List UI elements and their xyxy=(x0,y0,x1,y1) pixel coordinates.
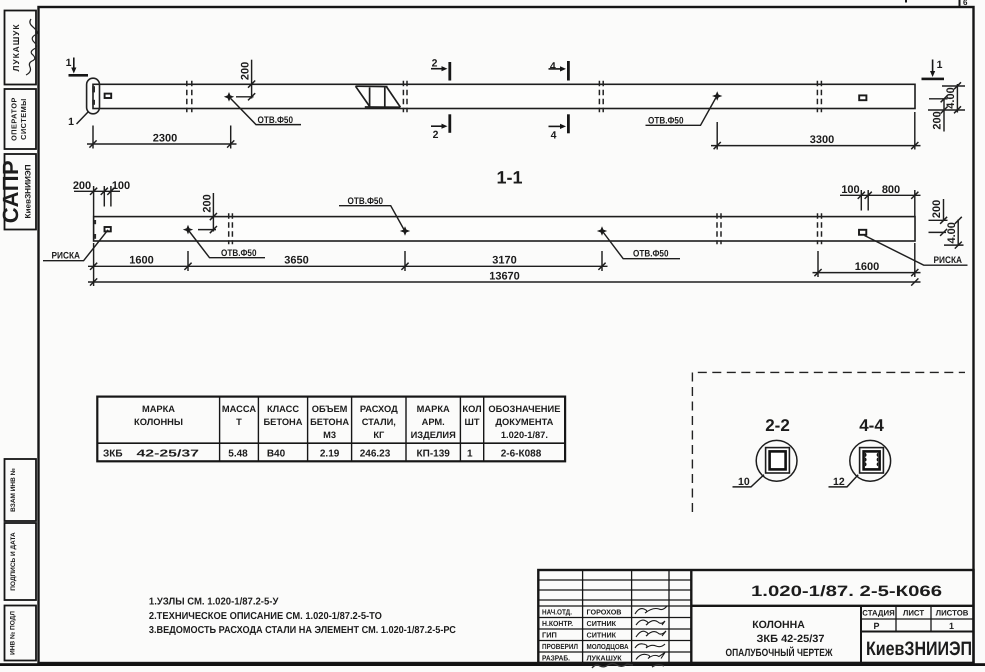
svg-text:В40: В40 xyxy=(267,449,286,460)
svg-text:САПР: САПР xyxy=(0,160,23,223)
svg-text:ОПАЛУБОЧНЫЙ ЧЕРТЕЖ: ОПАЛУБОЧНЫЙ ЧЕРТЕЖ xyxy=(726,646,833,659)
svg-text:КОЛОННЫ: КОЛОННЫ xyxy=(134,417,183,427)
svg-text:ГИП: ГИП xyxy=(542,631,557,640)
svg-text:2.ТЕХНИЧЕСКОЕ ОПИСАНИЕ СМ. 1.0: 2.ТЕХНИЧЕСКОЕ ОПИСАНИЕ СМ. 1.020-1/87.2-… xyxy=(149,611,382,622)
svg-text:12: 12 xyxy=(833,476,845,488)
svg-text:3.ВЕДОМОСТЬ РАСХОДА СТАЛИ НА Э: 3.ВЕДОМОСТЬ РАСХОДА СТАЛИ НА ЭЛЕМЕНТ СМ.… xyxy=(149,625,456,636)
svg-text:ШТ: ШТ xyxy=(464,417,479,427)
svg-text:2: 2 xyxy=(432,58,438,70)
svg-text:РАСХОД: РАСХОД xyxy=(360,404,398,414)
svg-text:АРМ.: АРМ. xyxy=(422,417,445,427)
svg-text:200: 200 xyxy=(240,62,252,80)
svg-text:5.48: 5.48 xyxy=(228,449,248,460)
svg-text:БЕТОНА: БЕТОНА xyxy=(264,417,303,427)
svg-text:НАЧ.ОТД.: НАЧ.ОТД. xyxy=(542,608,572,617)
svg-text:200: 200 xyxy=(201,194,213,212)
svg-text:ЗКБ 42-25/37: ЗКБ 42-25/37 xyxy=(757,633,825,645)
svg-text:РИСКА: РИСКА xyxy=(52,250,81,261)
svg-text:13670: 13670 xyxy=(489,270,520,282)
svg-text:1: 1 xyxy=(66,57,72,69)
svg-text:ЗКБ: ЗКБ xyxy=(103,449,123,460)
svg-text:ГОРОХОВ: ГОРОХОВ xyxy=(587,608,622,617)
svg-text:МОЛОДЦОВА: МОЛОДЦОВА xyxy=(587,642,629,651)
svg-text:ИЗДЕЛИЯ: ИЗДЕЛИЯ xyxy=(411,430,457,440)
svg-text:1.020-1/87.: 1.020-1/87. xyxy=(501,430,548,440)
svg-text:200: 200 xyxy=(931,111,943,129)
svg-text:2: 2 xyxy=(433,129,439,141)
svg-text:КЛАСС: КЛАСС xyxy=(267,404,299,414)
svg-text:1: 1 xyxy=(949,621,954,631)
svg-text:4-4: 4-4 xyxy=(859,416,884,435)
svg-text:КОЛОННА: КОЛОННА xyxy=(752,619,805,631)
svg-text:ЛУКАШУК: ЛУКАШУК xyxy=(587,653,623,662)
svg-text:РАЗРАБ.: РАЗРАБ. xyxy=(542,653,570,662)
svg-text:1.УЗЛЫ СМ. 1.020-1/87.2-5-У: 1.УЗЛЫ СМ. 1.020-1/87.2-5-У xyxy=(149,597,279,608)
svg-text:СТАЛИ,: СТАЛИ, xyxy=(362,417,396,427)
svg-text:ОТВ.Ф50: ОТВ.Ф50 xyxy=(648,116,684,127)
svg-text:ВЗАМ ИНВ №: ВЗАМ ИНВ № xyxy=(10,468,17,512)
svg-text:КГ: КГ xyxy=(373,430,385,440)
svg-text:1: 1 xyxy=(467,449,473,460)
svg-text:КОЛ: КОЛ xyxy=(462,404,481,414)
svg-text:2300: 2300 xyxy=(153,132,177,144)
svg-text:ЛИСТ: ЛИСТ xyxy=(903,609,925,618)
svg-text:1600: 1600 xyxy=(129,255,153,267)
svg-text:МАССА: МАССА xyxy=(222,404,256,414)
svg-text:ЛИСТОВ: ЛИСТОВ xyxy=(936,609,969,618)
svg-text:200: 200 xyxy=(73,180,91,192)
svg-text:РИСКА: РИСКА xyxy=(934,255,963,266)
svg-text:2-2: 2-2 xyxy=(765,416,790,435)
svg-text:БЕТОНА: БЕТОНА xyxy=(310,417,349,427)
svg-text:1600: 1600 xyxy=(855,261,879,273)
svg-text:КП-139: КП-139 xyxy=(417,449,451,460)
svg-text:ПРОВЕРИЛ: ПРОВЕРИЛ xyxy=(542,642,578,651)
svg-text:ОТВ.Ф50: ОТВ.Ф50 xyxy=(258,115,294,126)
svg-text:4.00: 4.00 xyxy=(945,87,957,108)
svg-text:4.00: 4.00 xyxy=(946,222,958,243)
svg-text:ИНВ № ПОДЛ: ИНВ № ПОДЛ xyxy=(10,611,17,655)
svg-text:Н.КОНТР.: Н.КОНТР. xyxy=(542,619,573,628)
svg-text:100: 100 xyxy=(112,180,130,192)
svg-text:ОТВ.Ф50: ОТВ.Ф50 xyxy=(633,248,669,259)
svg-text:КиевЗНИИЭП: КиевЗНИИЭП xyxy=(866,638,972,660)
svg-text:ОПЕРАТОР: ОПЕРАТОР xyxy=(10,97,19,141)
svg-text:1: 1 xyxy=(68,116,74,128)
svg-text:100: 100 xyxy=(841,184,859,196)
svg-text:СИТНИК: СИТНИК xyxy=(587,619,617,628)
svg-text:1: 1 xyxy=(937,59,943,71)
svg-text:Р: Р xyxy=(873,621,879,631)
svg-text:6: 6 xyxy=(963,0,968,7)
svg-text:246.23: 246.23 xyxy=(360,449,391,460)
svg-text:42-25/37: 42-25/37 xyxy=(137,449,200,460)
svg-text:ПОДПИСЬ И ДАТА: ПОДПИСЬ И ДАТА xyxy=(10,532,17,591)
svg-text:СИСТЕМЫ: СИСТЕМЫ xyxy=(19,98,28,140)
svg-text:1.020-1/87. 2-5-К066: 1.020-1/87. 2-5-К066 xyxy=(751,583,942,600)
svg-text:ОБЪЕМ: ОБЪЕМ xyxy=(312,404,348,414)
svg-text:М3: М3 xyxy=(323,430,336,440)
svg-text:3300: 3300 xyxy=(810,134,834,146)
svg-text:ОТВ.Ф50: ОТВ.Ф50 xyxy=(348,196,384,207)
svg-text:ДОКУМЕНТА: ДОКУМЕНТА xyxy=(495,417,553,427)
svg-text:Т: Т xyxy=(236,417,242,427)
svg-text:200: 200 xyxy=(931,200,943,218)
svg-text:10: 10 xyxy=(738,476,750,488)
svg-text:2.19: 2.19 xyxy=(320,449,340,460)
svg-text:800: 800 xyxy=(882,184,900,196)
svg-text:4: 4 xyxy=(551,130,557,142)
svg-text:1-1: 1-1 xyxy=(496,168,522,188)
svg-text:МАРКА: МАРКА xyxy=(142,404,175,414)
svg-text:3650: 3650 xyxy=(284,255,308,267)
svg-text:ОБОЗНАЧЕНИЕ: ОБОЗНАЧЕНИЕ xyxy=(488,404,560,414)
svg-text:МАРКА: МАРКА xyxy=(417,404,450,414)
svg-text:СИТНИК: СИТНИК xyxy=(587,631,617,640)
svg-text:ОТВ.Ф50: ОТВ.Ф50 xyxy=(221,248,257,259)
svg-text:КиевЗНИИЭП: КиевЗНИИЭП xyxy=(24,164,33,218)
svg-text:4: 4 xyxy=(550,61,556,73)
svg-text:2-6-К088: 2-6-К088 xyxy=(501,449,542,460)
svg-text:3170: 3170 xyxy=(492,255,516,267)
svg-text:ЛУКАШУК: ЛУКАШУК xyxy=(11,24,21,72)
svg-text:СТАДИЯ: СТАДИЯ xyxy=(862,609,895,618)
